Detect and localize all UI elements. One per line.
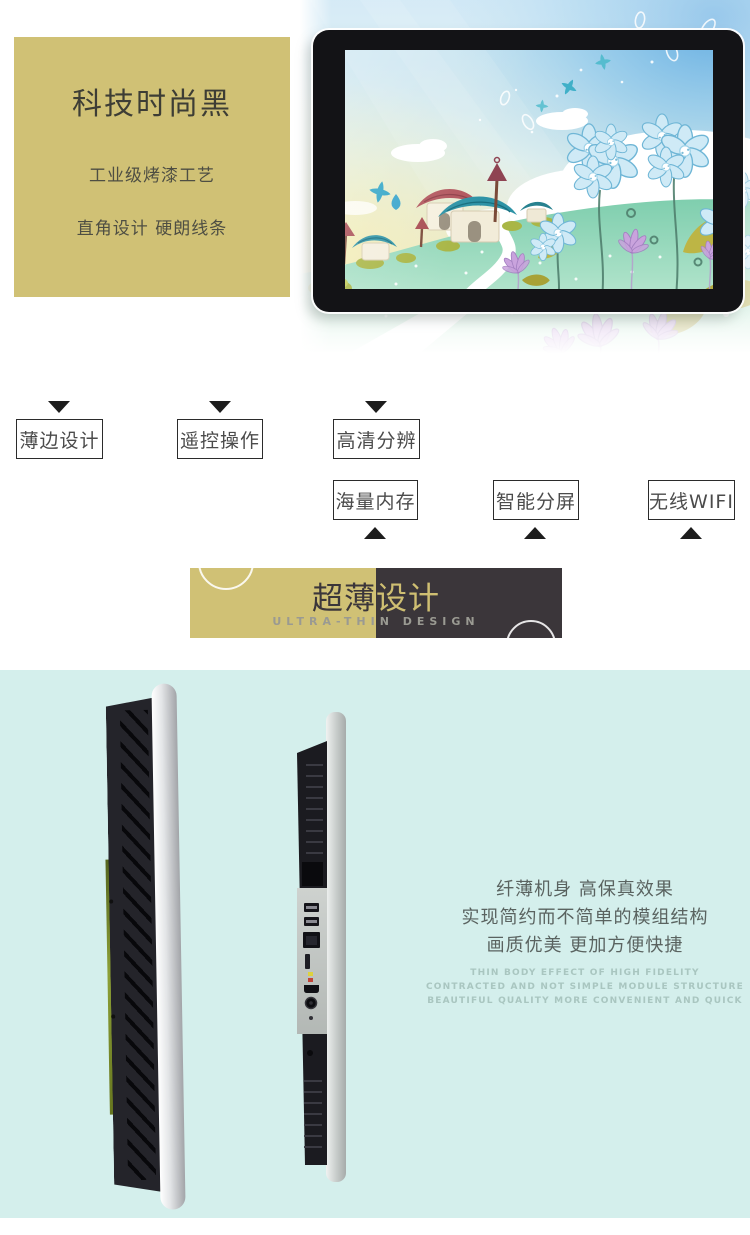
feature-box: 无线WIFI (648, 480, 735, 520)
thin-copy-line: 画质优美 更加方便快捷 (420, 932, 750, 960)
arrow-up-icon (364, 527, 386, 539)
banner-title-gold-part: 设计 (376, 581, 440, 617)
panel-subtitle-1: 工业级烤漆工艺 (14, 161, 290, 186)
mounting-hole (307, 1050, 313, 1056)
product-detail-page: 科技时尚黑 工业级烤漆工艺 直角设计 硬朗线条 薄边设计 遥控操作 高清分辨 海… (0, 0, 750, 1235)
arrow-down-icon (48, 401, 70, 413)
feature-box: 智能分屏 (493, 480, 579, 520)
thin-copy-en-line: CONTRACTED AND NOT SIMPLE MODULE STRUCTU… (420, 980, 750, 994)
arrow-down-icon (365, 401, 387, 413)
thin-copy-line: 实现简约而不简单的模组结构 (420, 904, 750, 932)
feature-box: 海量内存 (333, 480, 418, 520)
device-side-view-straight (294, 712, 348, 1186)
screw-dot (111, 1014, 115, 1018)
feature-box: 高清分辨 (333, 419, 420, 459)
thin-copy-en-line: BEAUTIFUL QUALITY MORE CONVENIENT AND QU… (420, 994, 750, 1008)
vent-slots-top (306, 764, 323, 874)
feature-box: 薄边设计 (16, 419, 103, 459)
thin-body-copy: 纤薄机身 高保真效果 实现简约而不简单的模组结构 画质优美 更加方便快捷 THI… (420, 876, 750, 1008)
arrow-up-icon (524, 527, 546, 539)
diagonal-vent-slots (120, 710, 156, 1180)
panel-title: 科技时尚黑 (14, 79, 290, 123)
thin-copy-en-line: THIN BODY EFFECT OF HIGH FIDELITY (420, 966, 750, 980)
panel-subtitle-2: 直角设计 硬朗线条 (14, 214, 290, 239)
io-ports (297, 888, 327, 1034)
feature-box: 遥控操作 (177, 419, 263, 459)
screen-glare (345, 50, 713, 289)
thin-copy-line: 纤薄机身 高保真效果 (420, 876, 750, 904)
banner-title: 超薄设计 (190, 573, 562, 618)
hero-text-panel: 科技时尚黑 工业级烤漆工艺 直角设计 硬朗线条 (14, 37, 290, 297)
arrow-down-icon (209, 401, 231, 413)
tablet-screen (345, 50, 713, 289)
tablet-front-view (313, 30, 743, 312)
screw-dot (109, 900, 113, 904)
vent-slots-bottom (304, 1080, 322, 1150)
banner-subtitle: ULTRA-THIN DESIGN (190, 615, 562, 628)
connector-block (302, 862, 323, 886)
io-port-panel (297, 888, 327, 1034)
arrow-up-icon (680, 527, 702, 539)
device-side-view-angled (99, 683, 186, 1210)
thin-body-section: 纤薄机身 高保真效果 实现简约而不简单的模组结构 画质优美 更加方便快捷 THI… (0, 670, 750, 1218)
ultra-thin-banner: 超薄设计 ULTRA-THIN DESIGN (190, 568, 562, 638)
device-front-bezel-edge (326, 712, 346, 1182)
banner-title-dark-part: 超薄 (312, 581, 376, 617)
